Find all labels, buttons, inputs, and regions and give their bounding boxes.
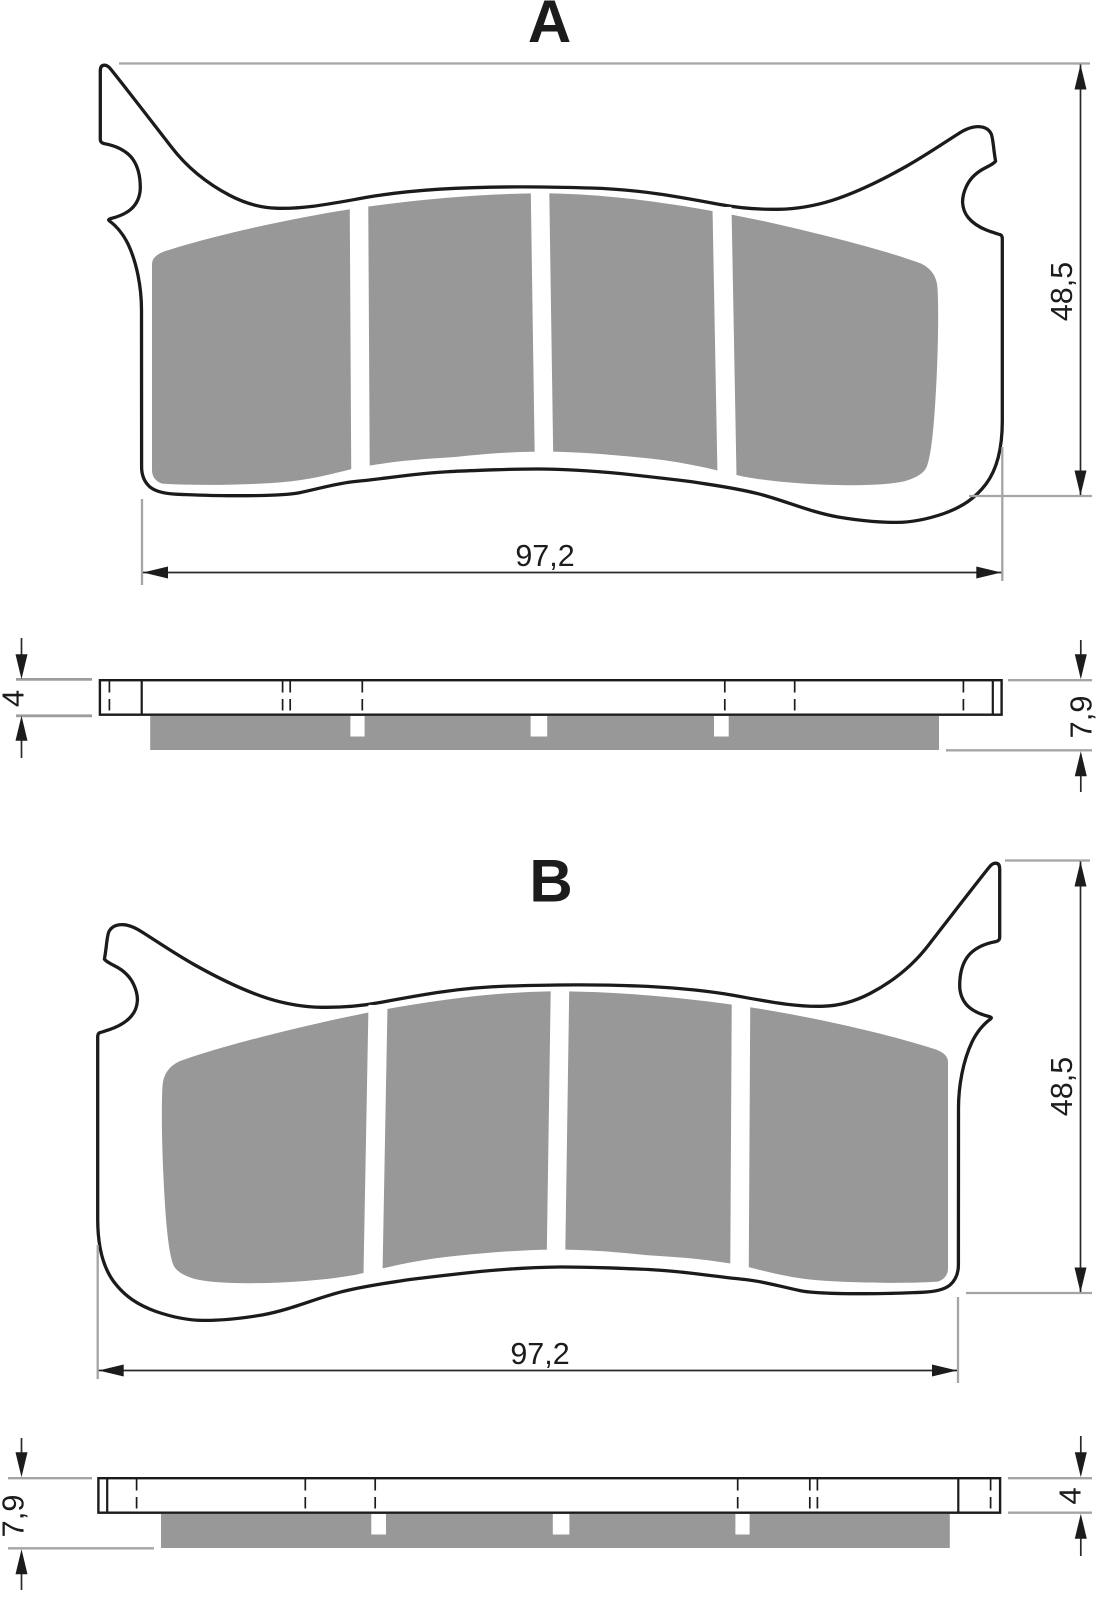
- svg-text:48,5: 48,5: [1045, 1057, 1079, 1116]
- svg-text:4: 4: [1053, 1487, 1088, 1504]
- svg-text:7,9: 7,9: [1064, 695, 1096, 738]
- svg-text:97,2: 97,2: [515, 539, 574, 573]
- svg-text:97,2: 97,2: [510, 1337, 569, 1371]
- svg-text:A: A: [528, 0, 571, 55]
- svg-text:48,5: 48,5: [1045, 262, 1079, 321]
- svg-text:7,9: 7,9: [0, 1494, 31, 1537]
- svg-text:B: B: [529, 847, 572, 914]
- svg-text:4: 4: [0, 690, 31, 707]
